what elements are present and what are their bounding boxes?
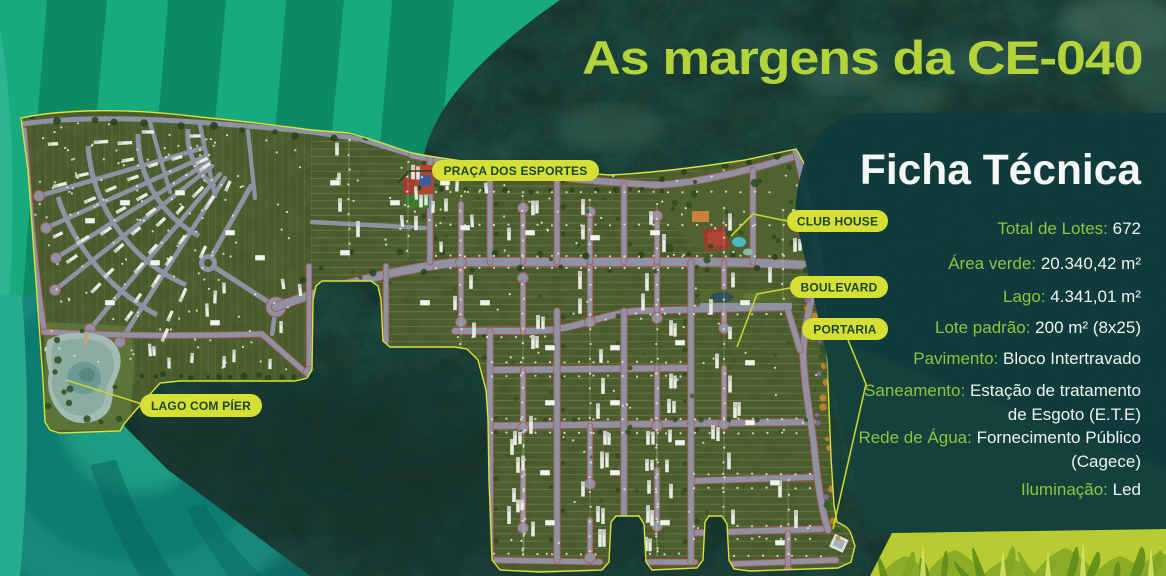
svg-text:PRAÇA DOS ESPORTES: PRAÇA DOS ESPORTES bbox=[444, 164, 588, 178]
svg-text:PORTARIA: PORTARIA bbox=[813, 322, 877, 336]
svg-text:LAGO COM PÍER: LAGO COM PÍER bbox=[151, 398, 251, 413]
svg-text:CLUB HOUSE: CLUB HOUSE bbox=[797, 214, 878, 228]
svg-text:BOULEVARD: BOULEVARD bbox=[801, 280, 878, 294]
